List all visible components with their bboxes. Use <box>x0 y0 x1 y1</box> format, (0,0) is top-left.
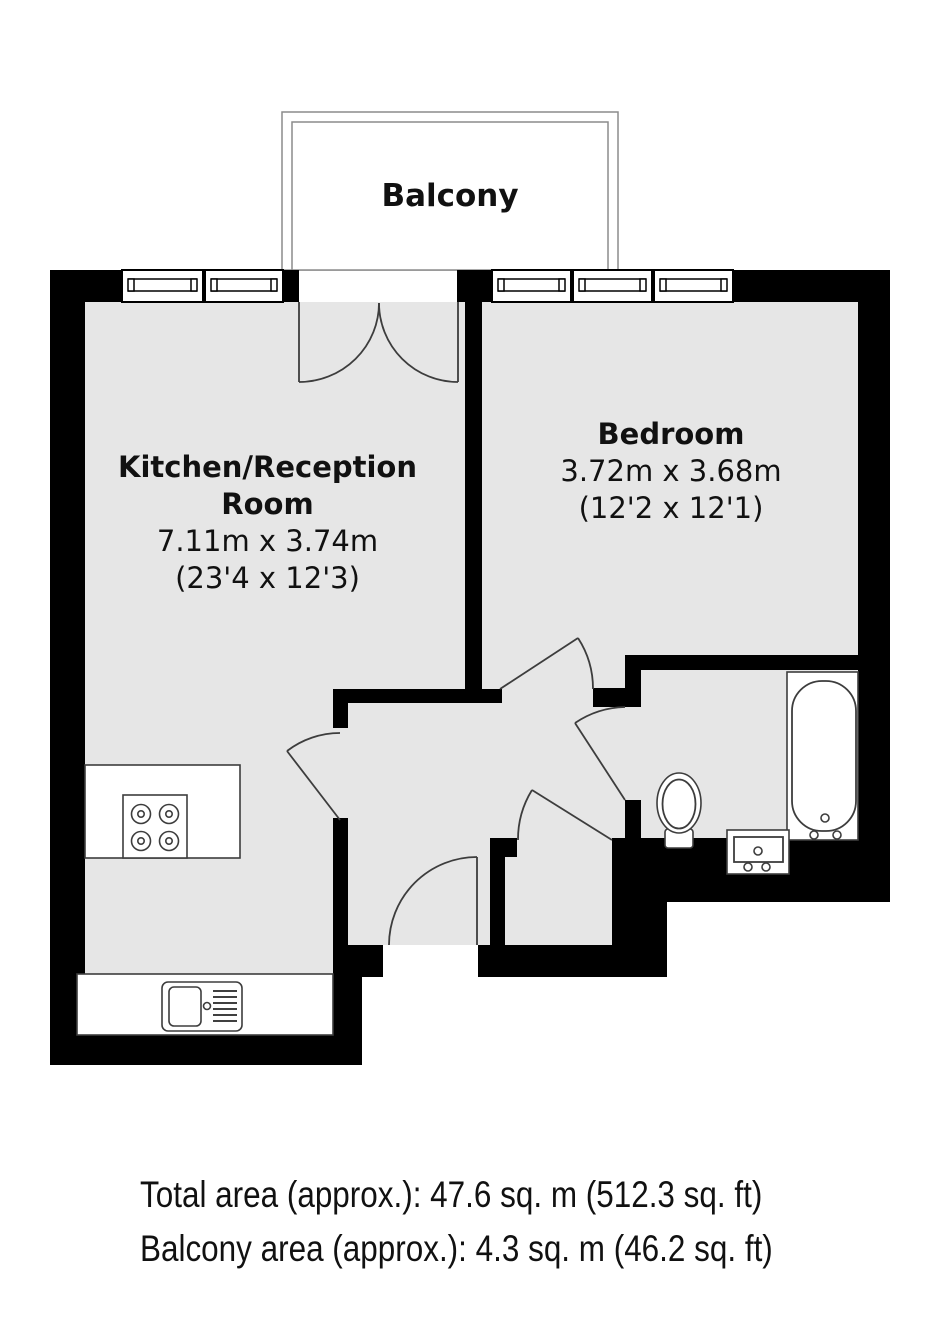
bedroom-window <box>492 270 733 302</box>
balcony-area-text: Balcony area (approx.): 4.3 sq. m (46.2 … <box>140 1222 773 1276</box>
kitchen-name-line1: Kitchen/Reception <box>85 449 450 486</box>
balcony-label: Balcony <box>282 178 618 215</box>
floorplan-page: Balcony Kitchen/Reception Room 7.11m x 3… <box>0 0 940 1329</box>
bathroom-sink-icon <box>727 830 789 874</box>
bedroom-room-label: Bedroom 3.72m x 3.68m (12'2 x 12'1) <box>482 416 860 527</box>
hob-icon <box>123 795 187 858</box>
area-summary: Total area (approx.): 47.6 sq. m (512.3 … <box>140 1168 773 1276</box>
kitchen-dims-metric: 7.11m x 3.74m <box>85 523 450 560</box>
kitchen-sink-icon <box>162 982 242 1031</box>
kitchen-name-line2: Room <box>85 486 450 523</box>
total-area-text: Total area (approx.): 47.6 sq. m (512.3 … <box>140 1168 773 1222</box>
bedroom-name: Bedroom <box>482 416 860 453</box>
bathtub-icon <box>787 672 858 840</box>
bedroom-dims-metric: 3.72m x 3.68m <box>482 453 860 490</box>
kitchen-window <box>122 270 283 302</box>
bedroom-dims-imperial: (12'2 x 12'1) <box>482 490 860 527</box>
kitchen-dims-imperial: (23'4 x 12'3) <box>85 560 450 597</box>
kitchen-room-label: Kitchen/Reception Room 7.11m x 3.74m (23… <box>85 449 450 597</box>
